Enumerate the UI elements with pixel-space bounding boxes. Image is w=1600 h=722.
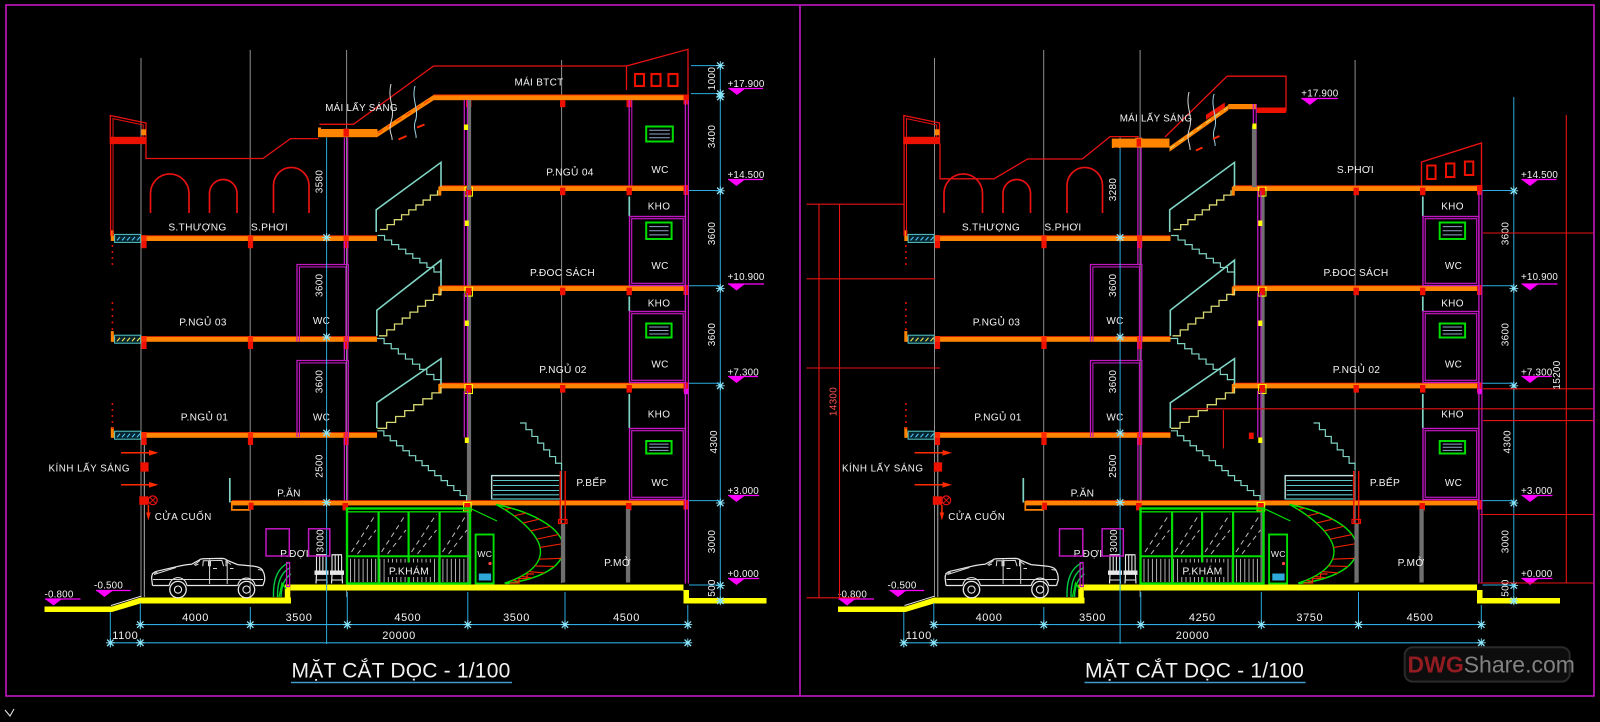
svg-text:4000: 4000 xyxy=(976,612,1003,624)
svg-text:3000: 3000 xyxy=(707,530,718,554)
svg-text:-0.500: -0.500 xyxy=(888,581,917,592)
svg-text:1100: 1100 xyxy=(906,630,932,642)
svg-text:P.ĂN: P.ĂN xyxy=(277,487,301,500)
svg-text:3400: 3400 xyxy=(707,125,718,149)
svg-text:4500: 4500 xyxy=(394,612,421,624)
svg-text:P.ĂN: P.ĂN xyxy=(1071,487,1095,500)
svg-text:3600: 3600 xyxy=(1501,323,1512,347)
svg-text:P.BẾP: P.BẾP xyxy=(576,476,606,489)
svg-text:P.NGỦ 03: P.NGỦ 03 xyxy=(179,316,227,329)
svg-text:2500: 2500 xyxy=(1108,454,1119,478)
svg-text:3500: 3500 xyxy=(1079,612,1106,624)
svg-text:S.THƯỢNG: S.THƯỢNG xyxy=(168,223,226,234)
svg-text:P.MỞ: P.MỞ xyxy=(604,556,631,569)
svg-text:KHO: KHO xyxy=(1441,201,1464,212)
svg-text:WC: WC xyxy=(651,478,668,489)
svg-text:MẶT CẮT DỌC - 1/100: MẶT CẮT DỌC - 1/100 xyxy=(1085,659,1304,683)
svg-text:MÁI LẤY SÁNG: MÁI LẤY SÁNG xyxy=(1120,114,1193,125)
svg-text:20000: 20000 xyxy=(382,630,416,642)
svg-text:WC: WC xyxy=(477,549,492,559)
svg-text:WC: WC xyxy=(651,261,668,272)
svg-text:-0.500: -0.500 xyxy=(94,581,123,592)
svg-text:WC: WC xyxy=(1445,360,1462,371)
svg-text:P.ĐỢI: P.ĐỢI xyxy=(280,549,309,560)
svg-text:500: 500 xyxy=(707,579,718,597)
svg-text:+17.900: +17.900 xyxy=(1301,89,1338,100)
svg-text:P.NGỦ 01: P.NGỦ 01 xyxy=(181,411,229,424)
svg-text:WC: WC xyxy=(1106,316,1123,327)
svg-text:MẶT CẮT DỌC - 1/100: MẶT CẮT DỌC - 1/100 xyxy=(292,659,511,683)
svg-text:MÁI LẤY SÁNG: MÁI LẤY SÁNG xyxy=(325,103,398,114)
svg-text:KÍNH LẤY SÁNG: KÍNH LẤY SÁNG xyxy=(842,464,923,475)
svg-text:KHO: KHO xyxy=(1441,298,1464,309)
svg-text:14300: 14300 xyxy=(829,387,840,416)
svg-text:P.ĐOC SÁCH: P.ĐOC SÁCH xyxy=(1323,266,1388,279)
svg-text:WC: WC xyxy=(1106,413,1123,424)
svg-text:CỬA CUỐN: CỬA CUỐN xyxy=(948,511,1005,523)
svg-text:S.PHƠI: S.PHƠI xyxy=(1337,165,1374,176)
svg-text:P.NGỦ 04: P.NGỦ 04 xyxy=(546,166,594,179)
svg-text:S.PHƠI: S.PHƠI xyxy=(1044,223,1081,234)
svg-text:2500: 2500 xyxy=(315,454,326,478)
svg-text:P.KHÁM: P.KHÁM xyxy=(389,564,429,577)
svg-text:4250: 4250 xyxy=(1189,612,1216,624)
svg-text:3750: 3750 xyxy=(1296,612,1323,624)
svg-text:3000: 3000 xyxy=(1109,529,1120,553)
svg-text:3600: 3600 xyxy=(707,323,718,347)
svg-text:3500: 3500 xyxy=(286,612,313,624)
svg-text:KHO: KHO xyxy=(648,201,671,212)
svg-text:WC: WC xyxy=(1445,261,1462,272)
svg-text:KÍNH LẤY SÁNG: KÍNH LẤY SÁNG xyxy=(49,464,130,475)
svg-text:S.PHƠI: S.PHƠI xyxy=(251,223,288,234)
svg-text:+10.900: +10.900 xyxy=(728,272,765,283)
svg-text:15200: 15200 xyxy=(1552,360,1563,389)
svg-text:DWGShare.com: DWGShare.com xyxy=(1408,652,1575,678)
svg-text:KHO: KHO xyxy=(1441,409,1464,420)
svg-text:WC: WC xyxy=(651,165,668,176)
svg-text:P.NGỦ 01: P.NGỦ 01 xyxy=(974,411,1022,424)
svg-text:3000: 3000 xyxy=(316,529,327,553)
svg-text:1100: 1100 xyxy=(112,630,138,642)
svg-text:20000: 20000 xyxy=(1176,630,1210,642)
svg-text:3600: 3600 xyxy=(315,273,326,297)
svg-text:P.MỞ: P.MỞ xyxy=(1398,556,1425,569)
svg-text:3600: 3600 xyxy=(1108,370,1119,394)
svg-text:WC: WC xyxy=(1445,478,1462,489)
svg-text:KHO: KHO xyxy=(648,298,671,309)
svg-text:3600: 3600 xyxy=(1108,273,1119,297)
svg-text:3600: 3600 xyxy=(707,222,718,246)
svg-text:P.NGỦ 03: P.NGỦ 03 xyxy=(973,316,1021,329)
svg-text:WC: WC xyxy=(313,316,330,327)
svg-text:3280: 3280 xyxy=(1108,178,1119,202)
svg-text:+10.900: +10.900 xyxy=(1521,272,1558,283)
svg-text:P.NGỦ 02: P.NGỦ 02 xyxy=(1333,363,1381,376)
svg-text:CỬA CUỐN: CỬA CUỐN xyxy=(155,511,212,523)
svg-text:WC: WC xyxy=(651,360,668,371)
svg-text:4300: 4300 xyxy=(709,430,720,454)
svg-text:3580: 3580 xyxy=(315,170,326,194)
svg-text:4500: 4500 xyxy=(613,612,640,624)
svg-text:P.ĐOC SÁCH: P.ĐOC SÁCH xyxy=(530,266,595,279)
svg-text:P.NGỦ 02: P.NGỦ 02 xyxy=(539,363,587,376)
svg-text:P.KHÁM: P.KHÁM xyxy=(1182,564,1222,577)
svg-text:MÁI BTCT: MÁI BTCT xyxy=(514,75,563,88)
svg-text:4000: 4000 xyxy=(182,612,209,624)
svg-text:3000: 3000 xyxy=(1501,530,1512,554)
svg-text:4500: 4500 xyxy=(1407,612,1434,624)
svg-text:P.BẾP: P.BẾP xyxy=(1370,476,1400,489)
svg-text:WC: WC xyxy=(313,413,330,424)
svg-text:P.ĐỢI: P.ĐỢI xyxy=(1074,549,1103,560)
svg-text:S.THƯỢNG: S.THƯỢNG xyxy=(962,223,1020,234)
svg-text:KHO: KHO xyxy=(648,409,671,420)
svg-text:4300: 4300 xyxy=(1503,430,1514,454)
svg-text:WC: WC xyxy=(1271,549,1286,559)
svg-text:3500: 3500 xyxy=(503,612,530,624)
svg-text:3600: 3600 xyxy=(315,370,326,394)
svg-text:500: 500 xyxy=(1501,579,1512,597)
svg-text:1000: 1000 xyxy=(707,67,718,91)
